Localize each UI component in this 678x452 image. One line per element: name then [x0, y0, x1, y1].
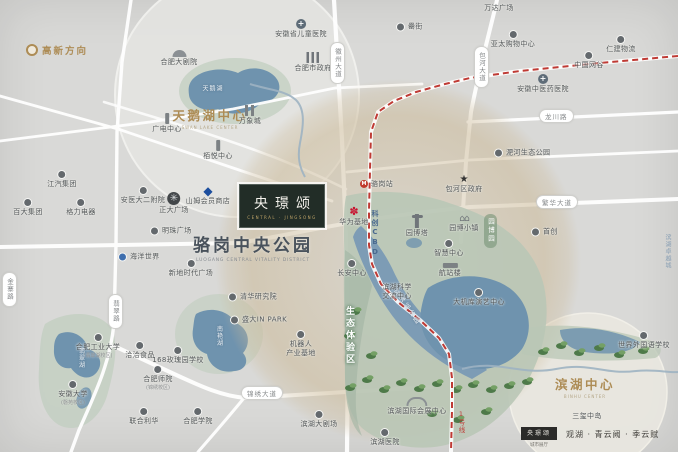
poi-label: 万象城	[239, 117, 261, 125]
poi-46: 世界外国语学校	[618, 331, 670, 349]
poi-28: 大机库演艺中心	[453, 288, 505, 306]
arc-icon	[406, 397, 427, 406]
dot-icon	[76, 198, 85, 207]
road-label-6: 金寨路	[2, 272, 17, 307]
poi-47: 三玺中岛	[572, 412, 602, 420]
dot-icon	[228, 293, 237, 302]
terminal-icon	[442, 263, 457, 268]
direction-icon	[26, 44, 38, 56]
wheel-icon: ✳	[167, 192, 180, 205]
star-icon: ★	[460, 175, 469, 184]
road-label-1: 包河大道	[474, 46, 489, 88]
district-label-en: BINHU CENTER	[555, 394, 615, 399]
district-label: 滨湖中心	[555, 374, 615, 393]
location-map: 高新方向 天鹅湖中心 SWAN LAKE CENTER 滨湖中心 BINHU C…	[0, 0, 678, 452]
poi-23: 首创	[531, 228, 558, 237]
poi-26: 智慧中心	[434, 239, 464, 257]
direction-label: 高新方向	[42, 43, 88, 57]
dot-icon	[94, 333, 103, 342]
poi-7: 明珠广场	[150, 227, 192, 236]
poi-label: 江汽集团	[47, 180, 77, 188]
cross-icon: +	[296, 19, 306, 29]
dot-icon	[174, 346, 183, 355]
poi-30: ✽华为基地	[339, 207, 369, 226]
lake-label-2: 翡翠湖	[77, 348, 86, 369]
lake-label-1: 南艳湖	[215, 326, 224, 347]
poi-17: 亚太购物中心	[491, 30, 535, 48]
poi-42: 合肥学院	[183, 407, 213, 425]
dot-icon	[396, 23, 405, 32]
poi-label: 仁建物流	[606, 45, 636, 53]
cross-icon: +	[538, 74, 548, 84]
poi-label: 合肥学院	[183, 417, 213, 425]
dot-icon	[187, 259, 196, 268]
towers-icon	[245, 105, 255, 116]
poi-32: 长安中心	[337, 259, 367, 277]
poi-sublabel: (锦绣校区)	[146, 384, 170, 391]
dot-icon	[230, 316, 239, 325]
blue-icon	[118, 253, 127, 262]
dot-icon	[494, 149, 503, 158]
project-logo: 央璟颂 CENTRAL · JINGSONG	[239, 184, 325, 228]
poi-label: 山姆会员商店	[186, 197, 230, 205]
poi-label: 智慧中心	[434, 249, 464, 257]
poi-label: 清华研究院	[240, 293, 277, 301]
gov-icon	[306, 52, 320, 63]
poi-10: 广电中心	[152, 113, 182, 133]
houses-icon: ⌂⌂	[459, 215, 468, 223]
dot-icon	[68, 380, 77, 389]
dot-icon	[193, 407, 202, 416]
poi-label: 园博塔	[406, 229, 428, 237]
poi-8: 海洋世界	[118, 253, 160, 262]
metro-icon: M	[360, 180, 368, 188]
poi-label: 格力电器	[66, 208, 96, 216]
poi-41: 联合利华	[129, 407, 159, 425]
poi-37: 168玫瑰园学校	[152, 346, 204, 364]
poi-39: 安徽大学(磬苑校区)	[58, 380, 88, 406]
poi-33: 清华研究院	[228, 293, 277, 302]
footer-brand-sub: 城市展厅	[521, 442, 557, 448]
project-name: 央璟颂	[247, 193, 317, 213]
metro-line-label: 1号线	[456, 410, 466, 434]
lake-label-0: 天鹅湖	[202, 84, 223, 93]
poi-12: 合肥大剧院	[161, 50, 198, 66]
dot-icon	[57, 170, 66, 179]
poi-label: 淝河生态公园	[506, 149, 550, 157]
dot-icon	[296, 330, 305, 339]
poi-label: 广电中心	[152, 125, 182, 133]
poi-22: ★包河区政府	[446, 175, 483, 193]
poi-11: 万象城	[239, 105, 261, 125]
poi-sublabel: (磬苑校区)	[61, 399, 85, 406]
poi-2: 格力电器	[66, 198, 96, 216]
diamond-icon: ◆	[203, 186, 212, 196]
poi-18: 中国网谷	[574, 51, 604, 69]
dot-icon	[475, 288, 484, 297]
tower-icon	[216, 140, 220, 151]
dot-icon	[347, 259, 356, 268]
poi-label: 包河区政府	[446, 185, 483, 193]
theater-icon	[172, 50, 186, 57]
poi-label: 合肥师院	[143, 375, 173, 383]
poi-label: 罍街	[408, 23, 423, 31]
footer-brand-badge: 央璟颂	[521, 427, 557, 440]
road-label-5: 翡翠路	[108, 294, 123, 329]
road-label-0: 徽州大道	[330, 42, 345, 84]
poi-label: 机器人	[290, 340, 312, 348]
district-swan-lake-center: 天鹅湖中心 SWAN LAKE CENTER	[172, 105, 247, 130]
poi-45: 滨湖国际会展中心	[387, 397, 446, 415]
poi-5: ◆山姆会员商店	[186, 186, 230, 205]
poi-label: 园博小镇	[449, 224, 479, 232]
dot-icon	[640, 331, 649, 340]
poi-label: 安徽省儿童医院	[275, 30, 327, 38]
dot-icon	[139, 407, 148, 416]
poi-label: 新地时代广场	[169, 269, 213, 277]
zone-kechuang-cbd: 科创CBD	[370, 210, 380, 258]
poi-4: ✳正大广场	[159, 192, 189, 214]
poi-24: 园博塔	[406, 214, 428, 237]
poi-label: 滨湖医院	[370, 438, 400, 446]
pagoda-icon	[415, 214, 419, 228]
poi-label: 安徽中医药医院	[517, 85, 569, 93]
poi-label: 正大广场	[159, 206, 189, 214]
poi-label: 亚太购物中心	[491, 40, 535, 48]
poi-label: 长安中心	[337, 269, 367, 277]
dot-icon	[509, 30, 518, 39]
poi-25: ⌂⌂园博小镇	[449, 215, 479, 232]
dot-icon	[444, 239, 453, 248]
poi-16: 万达广场	[484, 4, 514, 12]
park-title-cn: 骆岗中央公园	[193, 231, 313, 256]
poi-15: 罍街	[396, 23, 423, 32]
road-label-4: 锦绣大道	[241, 386, 283, 400]
poi-label: 滨湖科学	[382, 283, 412, 291]
dot-icon	[135, 341, 144, 350]
zone-garden-expo: 园博园	[484, 214, 497, 248]
poi-label: 百大集团	[13, 208, 43, 216]
poi-label-line2: 产业基地	[286, 349, 316, 357]
poi-label: 合肥市政府	[295, 64, 332, 72]
poi-40: 合肥师院(锦绣校区)	[143, 365, 173, 391]
project-name-en: CENTRAL · JINGSONG	[247, 215, 316, 220]
poi-label: 华为基地	[339, 218, 369, 226]
dot-icon	[616, 35, 625, 44]
dot-icon	[153, 365, 162, 374]
poi-label: 中国网谷	[574, 61, 604, 69]
poi-label: 明珠广场	[162, 227, 192, 235]
dot-icon	[315, 410, 324, 419]
poi-label: 联合利华	[129, 417, 159, 425]
dot-icon	[23, 198, 32, 207]
road-label-3: 繁华大道	[536, 195, 578, 209]
poi-label: 滨湖国际会展中心	[387, 407, 446, 415]
tower-icon	[165, 113, 169, 124]
poi-label: 首创	[543, 228, 558, 236]
poi-label: 合肥大剧院	[161, 58, 198, 66]
direction-gaoxin: 高新方向	[26, 43, 88, 57]
dot-icon	[531, 228, 540, 237]
footer-project-names: 观湖 · 青云阙 · 季云赋	[566, 429, 659, 440]
dot-icon	[584, 51, 593, 60]
poi-34: 盛大IN PARK	[230, 316, 287, 325]
zone-binhu-zhuoyue: 滨湖卓越城	[663, 234, 672, 269]
dot-icon	[139, 186, 148, 195]
poi-31: M骆岗站	[360, 180, 393, 188]
poi-21: 淝河生态公园	[494, 149, 550, 158]
poi-label: 洽洽食品	[125, 351, 155, 359]
poi-label: 三玺中岛	[572, 412, 602, 420]
poi-label: 骆岗站	[371, 180, 393, 188]
poi-label: 海洋世界	[130, 253, 160, 261]
poi-29: 滨湖科学交流中心	[382, 283, 412, 300]
poi-label: 大机库演艺中心	[453, 298, 505, 306]
district-label: 天鹅湖中心	[172, 105, 247, 124]
poi-13: 合肥市政府	[295, 52, 332, 72]
poi-27: 航站楼	[439, 263, 461, 277]
poi-1: 百大集团	[13, 198, 43, 216]
poi-20: +安徽中医药医院	[517, 74, 569, 93]
poi-label: 168玫瑰园学校	[152, 356, 204, 364]
district-label-en: SWAN LAKE CENTER	[172, 125, 247, 130]
dot-icon	[380, 428, 389, 437]
poi-label-line2: 交流中心	[382, 292, 412, 300]
poi-0: 江汽集团	[47, 170, 77, 188]
poi-label: 世界外国语学校	[618, 341, 670, 349]
poi-14: +安徽省儿童医院	[275, 19, 327, 38]
poi-44: 滨湖医院	[370, 428, 400, 446]
poi-label: 栢悦中心	[203, 152, 233, 160]
poi-43: 滨湖大剧场	[301, 410, 338, 428]
poi-sublabel: (翡翠湖校区)	[84, 352, 113, 359]
zone-eco-experience: 生态体验区	[343, 306, 356, 366]
dot-icon	[150, 227, 159, 236]
poi-label: 盛大IN PARK	[242, 316, 287, 324]
poi-36: 洽洽食品	[125, 341, 155, 359]
poi-label: 航站楼	[439, 269, 461, 277]
poi-35: 机器人产业基地	[286, 330, 316, 357]
poi-9: 新地时代广场	[169, 259, 213, 277]
poi-19: 仁建物流	[606, 35, 636, 53]
poi-label: 安徽大学	[58, 390, 88, 398]
poi-label: 万达广场	[484, 4, 514, 12]
poi-label: 滨湖大剧场	[301, 420, 338, 428]
district-binhu-center: 滨湖中心 BINHU CENTER	[555, 374, 615, 399]
road-label-2: 龙川路	[539, 109, 574, 123]
huawei-icon: ✽	[349, 207, 358, 217]
poi-6: 栢悦中心	[203, 140, 233, 160]
